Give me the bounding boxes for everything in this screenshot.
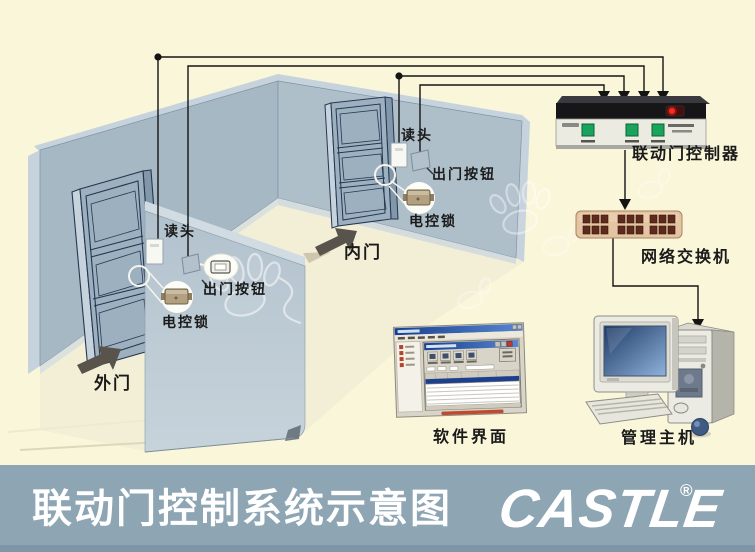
outer-exit-button-device: [182, 254, 200, 274]
host-label: 管理主机: [621, 428, 697, 447]
software-label: 软件界面: [433, 427, 509, 446]
software-window: [393, 323, 526, 417]
switch-label: 网络交换机: [641, 247, 731, 266]
outer-lock-label: 电控锁: [162, 314, 210, 330]
network-switch: [576, 211, 682, 238]
inner-reader-device: [391, 143, 407, 167]
inner-reader-label: 读头: [401, 127, 433, 143]
inner-lock-label: 电控锁: [409, 213, 457, 229]
outer-reader-device: [146, 239, 163, 264]
footer-title: 联动门控制系统示意图: [32, 487, 452, 531]
registered-mark: ®: [680, 481, 693, 500]
outer-exit-button-label: 出门按钮: [203, 281, 267, 297]
inner-dialog: [423, 339, 521, 410]
schematic-image: 联动门控制器 网络交换机: [0, 0, 755, 552]
inner-door: [325, 97, 398, 228]
controller-brand-mark: [562, 123, 579, 127]
controller-indicator: [666, 106, 684, 116]
inner-door-label: 内门: [344, 242, 382, 262]
door-controller: [556, 96, 710, 149]
diagram-canvas: 联动门控制器 网络交换机: [0, 0, 755, 552]
outer-door-label: 外门: [94, 373, 132, 393]
controller-label: 联动门控制器: [632, 144, 740, 163]
inner-exit-button-label: 出门按钮: [432, 166, 496, 182]
outer-reader-label: 读头: [164, 223, 196, 239]
mouse: [674, 403, 688, 413]
